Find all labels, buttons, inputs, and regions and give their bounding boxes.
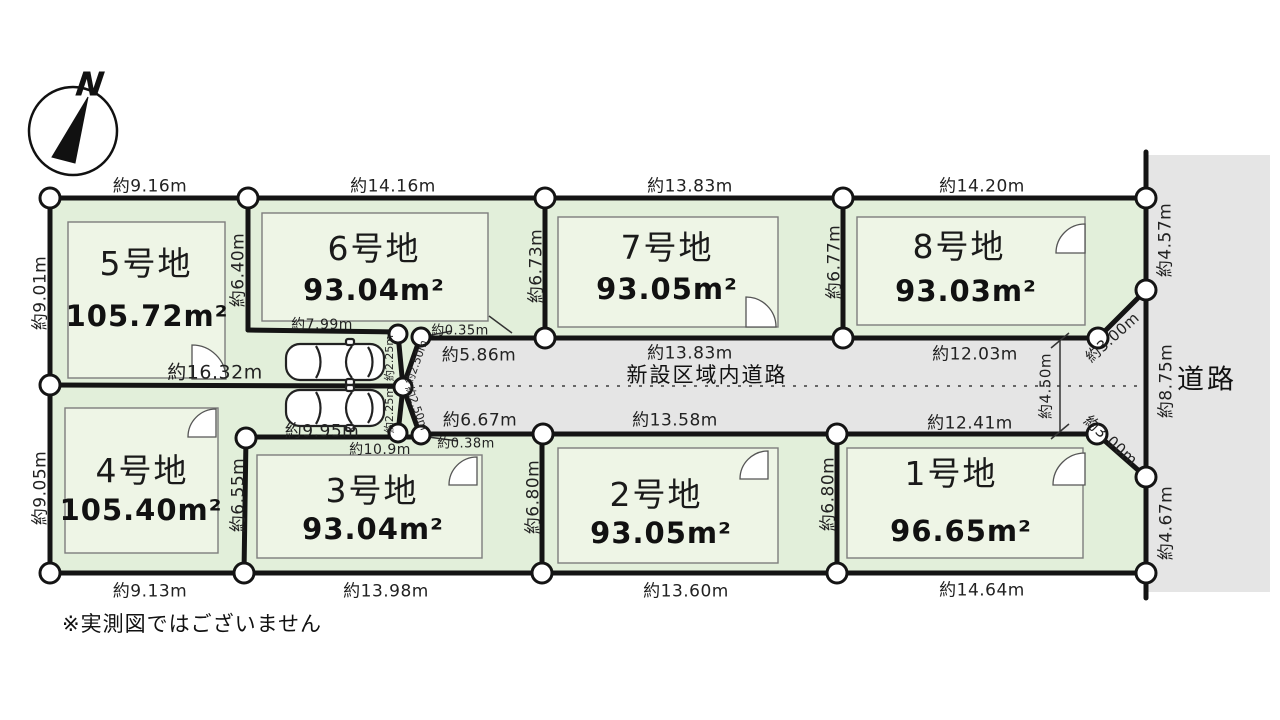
lot-5-area: 105.72m²	[66, 299, 229, 333]
dim-side-3-2: 約6.80m	[519, 460, 544, 534]
car-icon	[286, 339, 384, 385]
dim-top-lot8: 約14.20m	[939, 172, 1025, 197]
lot-5-label: 5号地	[100, 237, 193, 285]
dim-funnel-225-a: 約2.25m	[381, 335, 397, 381]
compass-north-label: N	[73, 65, 106, 104]
dim-jog-top: 約0.35m	[431, 320, 489, 339]
dim-jog-bottom: 約0.38m	[437, 433, 495, 452]
dim-top-lot5: 約9.16m	[113, 172, 187, 197]
dim-side-6-7: 約6.73m	[522, 229, 547, 303]
dim-side-7-8: 約6.77m	[820, 225, 845, 299]
lot-4-area: 105.40m²	[60, 493, 223, 527]
inner-road-label: 新設区域内道路	[627, 359, 788, 389]
right-road-label: 道路	[1177, 358, 1237, 397]
dim-9-95: 約9.95m	[285, 417, 359, 442]
dim-bottom-lot2: 約13.60m	[643, 577, 729, 602]
dim-left-lot5: 約9.01m	[26, 256, 51, 330]
dim-right-upper: 約4.57m	[1151, 203, 1176, 277]
dim-right-mid: 約8.75m	[1152, 344, 1177, 418]
dim-road-top-8: 約12.03m	[932, 340, 1018, 365]
lot-7-area: 93.05m²	[596, 272, 738, 306]
dim-top-lot7: 約13.83m	[647, 172, 733, 197]
lot-6-area: 93.04m²	[303, 273, 445, 307]
lot-8-label: 8号地	[913, 220, 1006, 268]
dim-road-bottom-1: 約12.41m	[927, 409, 1013, 434]
lot-8-area: 93.03m²	[895, 274, 1037, 308]
dim-road-bottom-2: 約13.58m	[632, 406, 718, 431]
dim-road-width: 約4.50m	[1035, 353, 1056, 419]
dim-bottom-lot3: 約13.98m	[343, 577, 429, 602]
site-plan: N 約9.16m 約14.16m 約13.83m 約14.20m 約9.01m …	[0, 0, 1280, 720]
lot-1-label: 1号地	[905, 447, 998, 495]
dim-lot3-north: 約10.9m	[349, 439, 411, 459]
dim-road-top-w: 約5.86m	[442, 341, 516, 366]
dim-left-lot4: 約9.05m	[26, 451, 51, 525]
dim-funnel-225-b: 約2.25m	[381, 387, 397, 433]
lot-3-label: 3号地	[326, 464, 419, 512]
lot-1-area: 96.65m²	[890, 514, 1032, 548]
lot-4-label: 4号地	[96, 444, 189, 492]
dim-top-lot6: 約14.16m	[350, 172, 436, 197]
dim-side-2-1: 約6.80m	[814, 457, 839, 531]
dim-road-bottom-w: 約6.67m	[443, 406, 517, 431]
lot-2-area: 93.05m²	[590, 516, 732, 550]
dim-bottom-lot4: 約9.13m	[113, 577, 187, 602]
lot-2-label: 2号地	[610, 468, 703, 516]
dim-16-32: 約16.32m	[167, 358, 262, 385]
dim-side-4-3: 約6.55m	[224, 458, 249, 532]
dim-bottom-lot1: 約14.64m	[939, 576, 1025, 601]
dim-side-5-6: 約6.40m	[224, 233, 249, 307]
dim-right-lower: 約4.67m	[1152, 486, 1177, 560]
lot-3-area: 93.04m²	[302, 512, 444, 546]
lot-7-label: 7号地	[621, 221, 714, 269]
disclaimer-note: ※実測図ではございません	[62, 608, 322, 638]
dim-lot6-south: 約7.99m	[291, 314, 353, 334]
lot-6-label: 6号地	[328, 222, 421, 270]
